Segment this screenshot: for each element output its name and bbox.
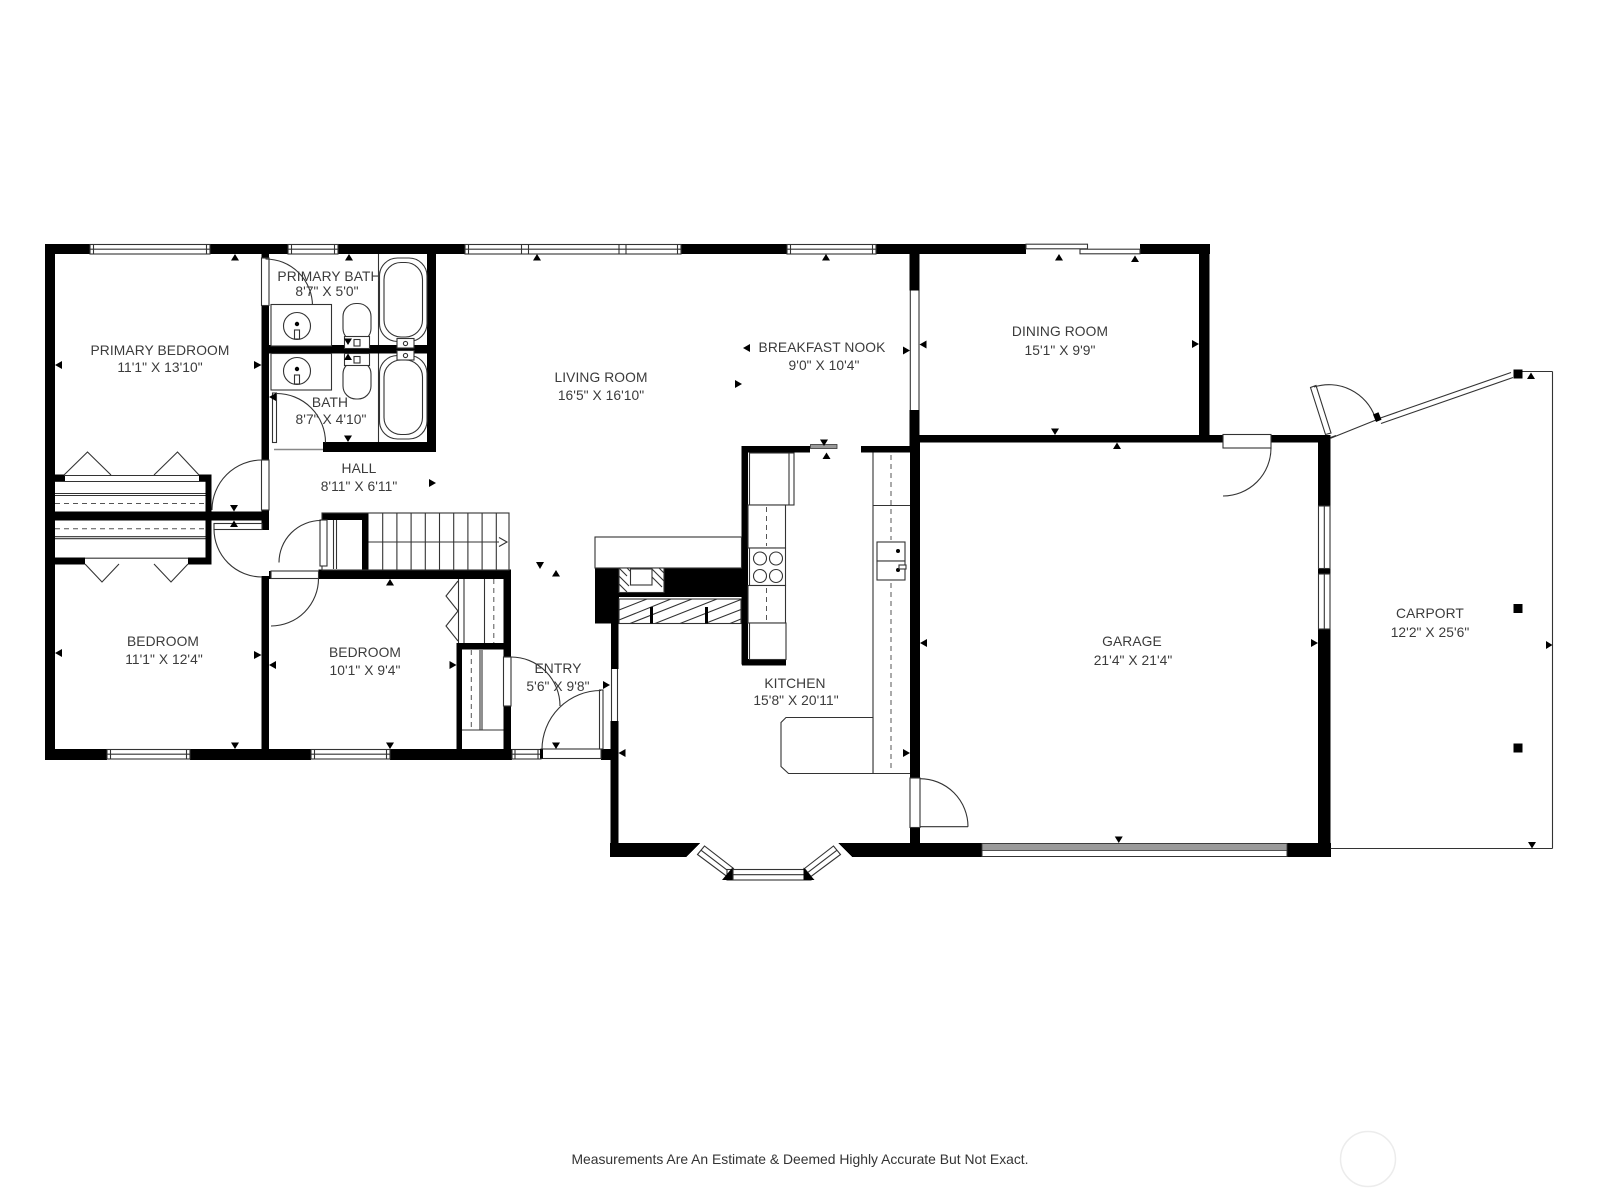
svg-text:10'1" X 9'4": 10'1" X 9'4" [330, 663, 401, 678]
svg-text:8'11" X 6'11": 8'11" X 6'11" [321, 479, 398, 494]
svg-text:8'7" X 5'0": 8'7" X 5'0" [295, 284, 358, 299]
svg-text:GARAGE: GARAGE [1102, 634, 1162, 649]
svg-text:16'5" X 16'10": 16'5" X 16'10" [558, 388, 644, 403]
svg-text:HALL: HALL [342, 461, 377, 476]
svg-text:BEDROOM: BEDROOM [127, 634, 199, 649]
svg-text:11'1" X 13'10": 11'1" X 13'10" [117, 360, 202, 375]
svg-text:21'4" X 21'4": 21'4" X 21'4" [1094, 653, 1173, 668]
svg-text:12'2" X 25'6": 12'2" X 25'6" [1391, 625, 1470, 640]
svg-text:PRIMARY BATH: PRIMARY BATH [277, 269, 380, 284]
svg-text:ENTRY: ENTRY [534, 661, 581, 676]
svg-text:BEDROOM: BEDROOM [329, 645, 401, 660]
svg-text:LIVING ROOM: LIVING ROOM [554, 370, 647, 385]
svg-text:15'1" X 9'9": 15'1" X 9'9" [1025, 343, 1096, 358]
svg-text:5'6" X 9'8": 5'6" X 9'8" [526, 679, 589, 694]
svg-text:9'0" X 10'4": 9'0" X 10'4" [789, 358, 860, 373]
svg-text:Measurements Are An Estimate &: Measurements Are An Estimate & Deemed Hi… [571, 1151, 1028, 1167]
svg-text:BATH: BATH [312, 395, 348, 410]
svg-text:DINING ROOM: DINING ROOM [1012, 324, 1108, 339]
svg-text:11'1" X 12'4": 11'1" X 12'4" [125, 652, 203, 667]
svg-text:PRIMARY BEDROOM: PRIMARY BEDROOM [91, 343, 230, 358]
svg-text:KITCHEN: KITCHEN [764, 676, 825, 691]
svg-text:BREAKFAST NOOK: BREAKFAST NOOK [759, 340, 887, 355]
svg-text:8'7" X 4'10": 8'7" X 4'10" [296, 412, 367, 427]
svg-text:CARPORT: CARPORT [1396, 606, 1464, 621]
svg-text:15'8" X 20'11": 15'8" X 20'11" [753, 693, 838, 708]
